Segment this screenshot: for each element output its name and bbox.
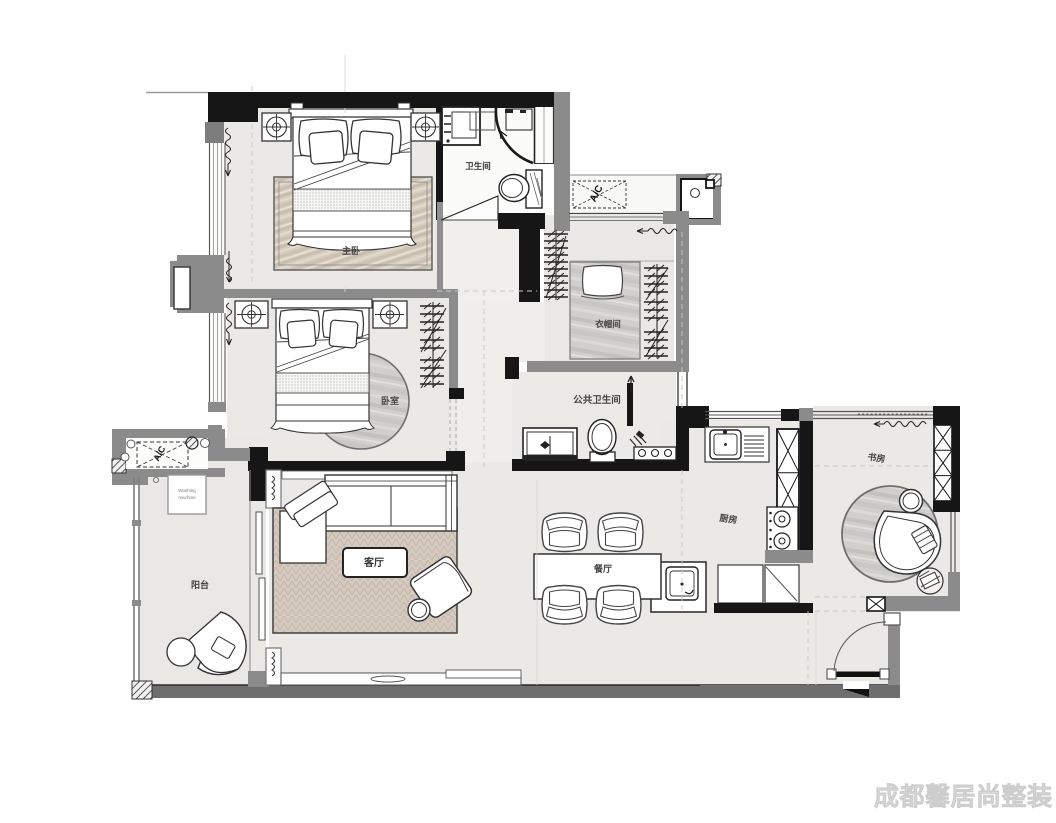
svg-text:卧室: 卧室 [381, 395, 399, 406]
svg-text:阳台: 阳台 [191, 579, 209, 590]
svg-text:主卧: 主卧 [342, 245, 360, 256]
svg-text:客厅: 客厅 [363, 556, 384, 569]
svg-text:卫生间: 卫生间 [465, 161, 491, 171]
svg-text:衣帽间: 衣帽间 [595, 319, 621, 329]
svg-text:Washing: Washing [178, 488, 196, 493]
svg-text:餐厅: 餐厅 [593, 563, 612, 574]
svg-text:machine: machine [178, 495, 196, 500]
svg-text:成都馨居尚整装: 成都馨居尚整装 [874, 783, 1053, 811]
svg-text:公共卫生间: 公共卫生间 [573, 394, 621, 406]
